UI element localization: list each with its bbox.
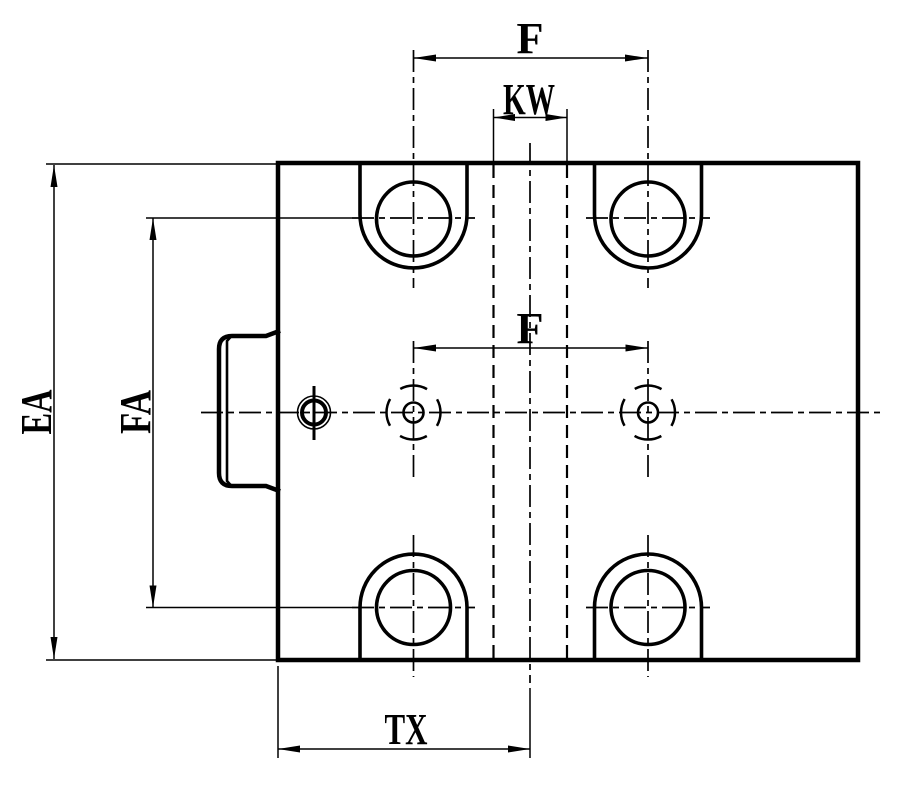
dimension-label-tx: TX <box>385 705 428 754</box>
dimension-f-middle: F <box>414 304 649 353</box>
centerlines <box>201 50 884 683</box>
arrowhead-right <box>508 746 530 753</box>
arrowhead-left <box>414 345 437 352</box>
side-boss-inner-edge <box>227 337 231 486</box>
arrowhead-right <box>625 55 648 62</box>
dimension-tx: TX <box>278 666 530 758</box>
dimension-label-ea: EA <box>12 389 61 434</box>
technical-drawing-page: F KW F EA <box>0 0 916 793</box>
arrowhead-left <box>414 55 437 62</box>
arrowhead-top <box>51 165 58 187</box>
side-boss <box>219 332 278 491</box>
pilot-orifice <box>298 386 331 440</box>
arrowhead-bottom <box>150 586 157 608</box>
dimension-f-top: F <box>414 14 648 63</box>
dimension-label-f-top: F <box>517 14 544 63</box>
dimension-label-f-middle: F <box>517 304 544 353</box>
arrowhead-left <box>278 746 300 753</box>
arrowhead-bottom <box>51 637 58 659</box>
mounting-slot-bottom-right <box>595 554 702 660</box>
mounting-slot-bottom-left <box>360 554 467 660</box>
technical-drawing-canvas: F KW F EA <box>0 0 916 793</box>
arrowhead-right <box>626 345 649 352</box>
dimension-label-fa: FA <box>111 390 160 434</box>
arrowhead-top <box>150 218 157 240</box>
dimension-label-kw: KW <box>503 75 555 124</box>
